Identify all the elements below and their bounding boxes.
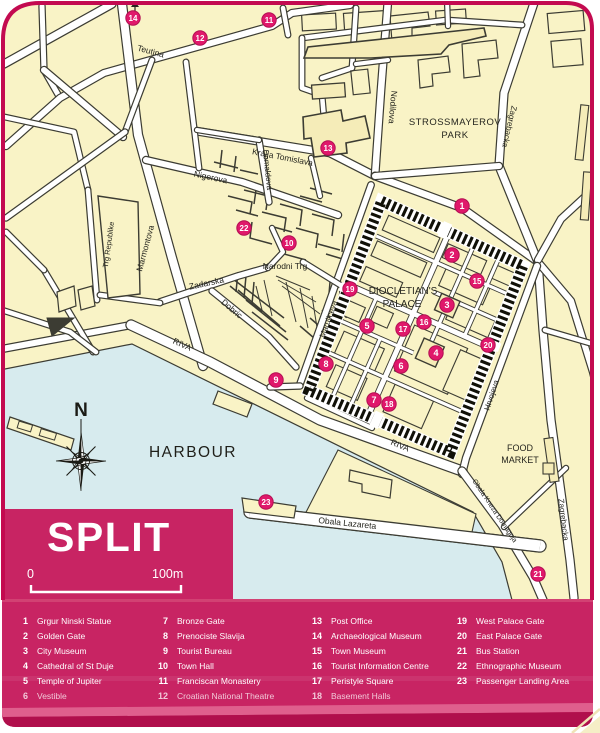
svg-text:Post Office: Post Office (331, 616, 373, 626)
svg-text:8: 8 (323, 359, 328, 369)
svg-text:15: 15 (312, 646, 322, 656)
svg-text:Passenger Landing Area: Passenger Landing Area (476, 676, 569, 686)
svg-text:10: 10 (158, 661, 168, 671)
svg-text:22: 22 (240, 224, 249, 233)
svg-text:21: 21 (534, 570, 543, 579)
svg-text:Bronze Gate: Bronze Gate (177, 616, 225, 626)
svg-text:13: 13 (324, 144, 333, 153)
svg-text:14: 14 (129, 14, 138, 23)
svg-text:Tourist Information Centre: Tourist Information Centre (331, 661, 429, 671)
svg-text:Croatian National Theatre: Croatian National Theatre (177, 691, 274, 701)
svg-text:16: 16 (312, 661, 322, 671)
svg-text:11: 11 (265, 16, 274, 25)
svg-text:Narodni Trg: Narodni Trg (263, 261, 308, 271)
svg-text:N: N (74, 400, 88, 421)
svg-text:16: 16 (420, 318, 429, 327)
svg-text:Prenociste Slavija: Prenociste Slavija (177, 631, 245, 641)
svg-text:20: 20 (457, 631, 467, 641)
svg-text:18: 18 (385, 400, 394, 409)
svg-text:23: 23 (262, 498, 271, 507)
svg-text:3: 3 (444, 300, 449, 310)
svg-text:100m: 100m (152, 567, 183, 581)
svg-text:11: 11 (158, 676, 168, 686)
svg-text:6: 6 (23, 691, 28, 701)
svg-text:Grgur Ninski Statue: Grgur Ninski Statue (37, 616, 111, 626)
svg-text:23: 23 (457, 676, 467, 686)
svg-text:10: 10 (285, 239, 294, 248)
svg-text:HARBOUR: HARBOUR (149, 444, 237, 461)
svg-text:12: 12 (158, 691, 168, 701)
svg-text:8: 8 (163, 631, 168, 641)
svg-text:Bus Station: Bus Station (476, 646, 520, 656)
svg-text:4: 4 (433, 348, 438, 358)
svg-text:21: 21 (457, 646, 467, 656)
svg-text:18: 18 (312, 691, 322, 701)
svg-text:Temple of Jupiter: Temple of Jupiter (37, 676, 102, 686)
svg-text:Archaeological Museum: Archaeological Museum (331, 631, 422, 641)
svg-text:4: 4 (23, 661, 28, 671)
svg-text:17: 17 (399, 325, 408, 334)
svg-text:15: 15 (473, 277, 482, 286)
svg-text:Franciscan Monastery: Franciscan Monastery (177, 676, 261, 686)
svg-text:17: 17 (312, 676, 322, 686)
svg-text:Ethnographic Museum: Ethnographic Museum (476, 661, 561, 671)
svg-text:0: 0 (27, 567, 34, 581)
svg-text:Cathedral of St Duje: Cathedral of St Duje (37, 661, 114, 671)
svg-text:5: 5 (23, 676, 28, 686)
svg-text:Tourist Bureau: Tourist Bureau (177, 646, 232, 656)
svg-text:1: 1 (459, 201, 464, 211)
svg-text:3: 3 (23, 646, 28, 656)
svg-text:20: 20 (484, 341, 493, 350)
svg-text:2: 2 (449, 250, 454, 260)
svg-text:1: 1 (23, 616, 28, 626)
svg-text:2: 2 (23, 631, 28, 641)
svg-text:5: 5 (364, 321, 369, 331)
svg-text:14: 14 (312, 631, 322, 641)
svg-text:Peristyle Square: Peristyle Square (331, 676, 394, 686)
svg-text:19: 19 (346, 285, 355, 294)
svg-text:City Museum: City Museum (37, 646, 87, 656)
svg-text:7: 7 (371, 395, 376, 405)
svg-text:PARK: PARK (441, 130, 468, 141)
svg-text:Town Museum: Town Museum (331, 646, 386, 656)
svg-text:9: 9 (273, 375, 278, 385)
svg-text:MARKET: MARKET (501, 455, 539, 465)
svg-text:12: 12 (196, 34, 205, 43)
svg-text:West Palace Gate: West Palace Gate (476, 616, 545, 626)
svg-text:STROSSMAYEROV: STROSSMAYEROV (409, 117, 502, 128)
svg-text:Town Hall: Town Hall (177, 661, 214, 671)
svg-text:DIOCLETIAN'S: DIOCLETIAN'S (369, 286, 438, 297)
svg-text:9: 9 (163, 646, 168, 656)
svg-text:PALACE: PALACE (383, 299, 422, 310)
svg-text:Golden Gate: Golden Gate (37, 631, 85, 641)
svg-text:SPLIT: SPLIT (47, 514, 171, 560)
svg-text:Vestible: Vestible (37, 691, 67, 701)
svg-text:6: 6 (398, 361, 403, 371)
svg-text:7: 7 (163, 616, 168, 626)
svg-text:FOOD: FOOD (507, 443, 533, 453)
svg-text:22: 22 (457, 661, 467, 671)
svg-text:Basement Halls: Basement Halls (331, 691, 391, 701)
svg-text:19: 19 (457, 616, 467, 626)
svg-text:13: 13 (312, 616, 322, 626)
svg-text:East Palace Gate: East Palace Gate (476, 631, 542, 641)
